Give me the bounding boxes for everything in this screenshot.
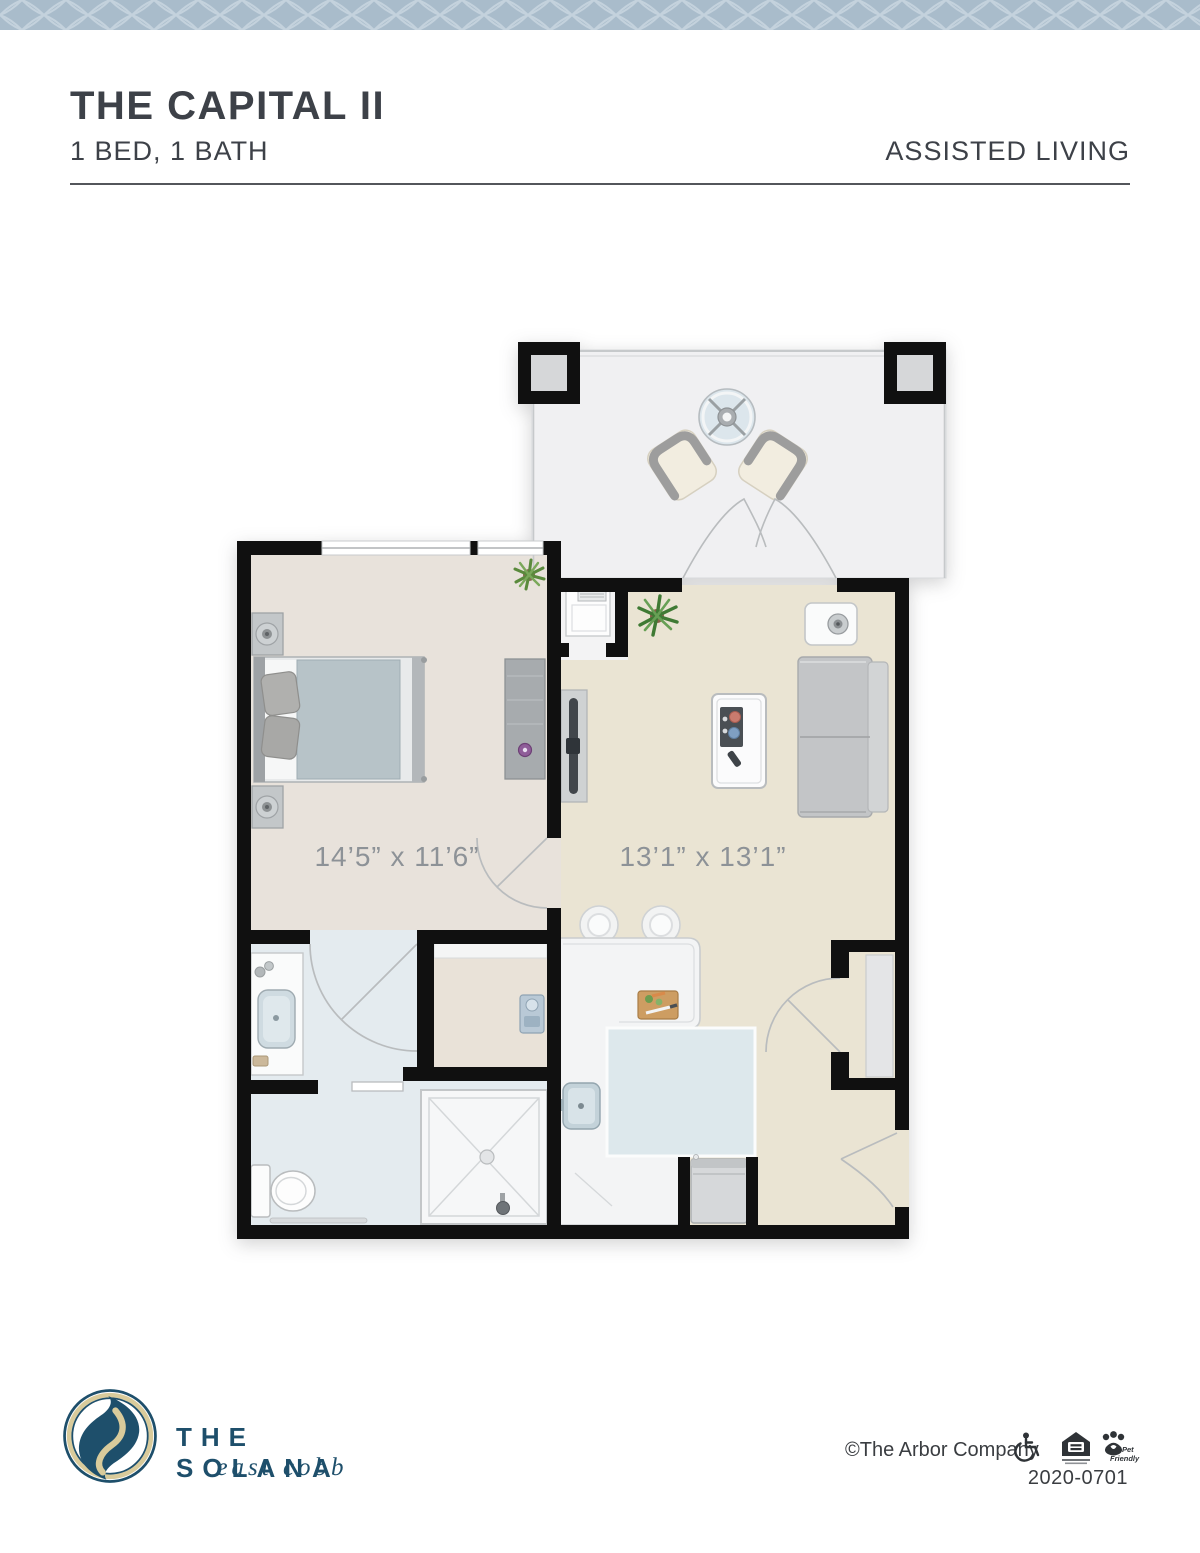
- bed: [254, 657, 427, 782]
- patio-pillar: [884, 342, 946, 404]
- bathroom-vanity: [251, 953, 303, 1075]
- grab-bar: [270, 1218, 367, 1223]
- dresser: [505, 659, 545, 779]
- bedroom-dimensions-label: 14’5” x 11’6”: [314, 841, 479, 872]
- pet-label-2: Friendly: [1110, 1454, 1140, 1463]
- pet-label-1: Pet: [1122, 1445, 1134, 1454]
- bedroom-windows: [322, 541, 543, 555]
- bedroom-door-gap: [547, 838, 561, 908]
- equal-housing-opportunity-icon: [1062, 1432, 1090, 1464]
- footboard: [412, 657, 424, 782]
- nightstand: [252, 786, 283, 828]
- patio-table: [699, 389, 755, 445]
- kitchen-vinyl-floor: [607, 1028, 755, 1156]
- pillow: [260, 671, 300, 716]
- closet-shelf: [434, 942, 547, 958]
- pet-friendly-icon: Pet Friendly: [1103, 1431, 1140, 1463]
- end-table: [805, 603, 857, 645]
- kitchen-sink: [559, 1083, 600, 1129]
- sofa: [798, 657, 888, 817]
- patio-pillar: [518, 342, 580, 404]
- wall-right: [895, 578, 909, 1130]
- storage-door-gap: [569, 643, 606, 657]
- closet-appliance: [520, 995, 544, 1033]
- footer-badges: Pet Friendly: [1014, 1430, 1140, 1470]
- living-room-dimensions-label: 13’1” x 13’1”: [619, 841, 786, 872]
- pillow: [261, 715, 301, 760]
- cutting-board: [638, 991, 678, 1019]
- wheelchair-accessible-icon: [1015, 1433, 1038, 1461]
- pocket-door: [352, 1082, 403, 1091]
- copyright-text: ©The Arbor Company: [845, 1439, 1039, 1462]
- shower-head: [497, 1202, 510, 1215]
- tv-console: [561, 690, 587, 802]
- wall-bottom: [237, 1225, 909, 1239]
- shower: [421, 1090, 547, 1224]
- nightstand: [252, 613, 283, 655]
- solana-logo: [60, 1386, 160, 1486]
- floor-plan: 14’5” x 11’6” 13’1” x 13’1”: [0, 0, 1200, 1553]
- patio-floor: [532, 350, 946, 578]
- headboard: [254, 657, 265, 782]
- coffee-table: [712, 694, 766, 788]
- floorplan-sheet: THE CAPITAL II 1 BED, 1 BATH ASSISTED LI…: [0, 0, 1200, 1553]
- document-number: 2020-0701: [995, 1467, 1128, 1490]
- refrigerator: [691, 1155, 747, 1224]
- utility-unit: [566, 588, 610, 636]
- entry-closet-panel: [866, 955, 893, 1077]
- wall-left: [237, 541, 251, 1239]
- duvet: [297, 660, 400, 779]
- brand-location: east cobb: [168, 1454, 396, 1482]
- bathroom-door-gap: [310, 930, 417, 944]
